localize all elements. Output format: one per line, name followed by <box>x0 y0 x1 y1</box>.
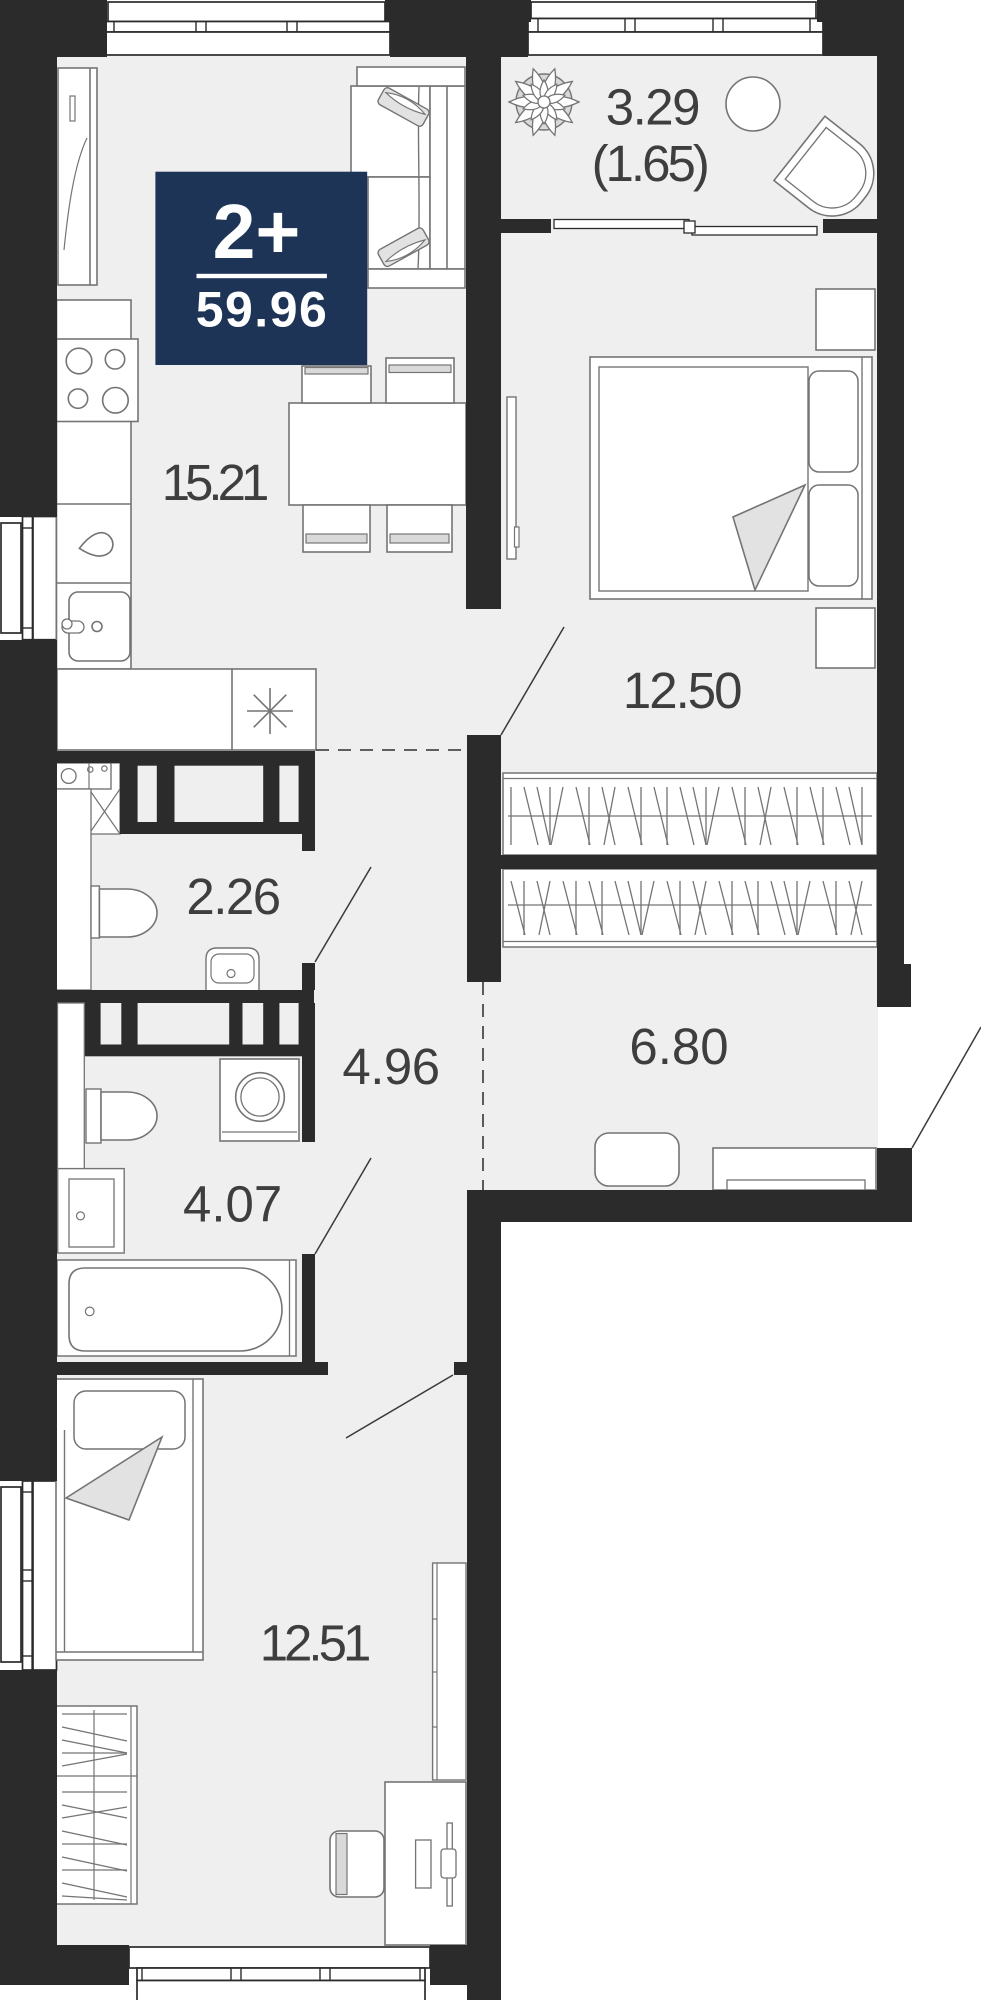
svg-text:2.26: 2.26 <box>186 868 279 925</box>
svg-text:12.51: 12.51 <box>260 1615 369 1672</box>
svg-text:4.96: 4.96 <box>342 1038 439 1095</box>
svg-text:15.21: 15.21 <box>162 454 267 511</box>
svg-text:4.07: 4.07 <box>183 1176 282 1233</box>
svg-text:12.50: 12.50 <box>623 662 741 719</box>
svg-text:6.80: 6.80 <box>629 1018 728 1075</box>
svg-text:59.96: 59.96 <box>196 281 329 337</box>
svg-text:2+: 2+ <box>213 189 301 275</box>
svg-text:3.29: 3.29 <box>606 79 699 136</box>
svg-text:(1.65): (1.65) <box>592 135 707 192</box>
